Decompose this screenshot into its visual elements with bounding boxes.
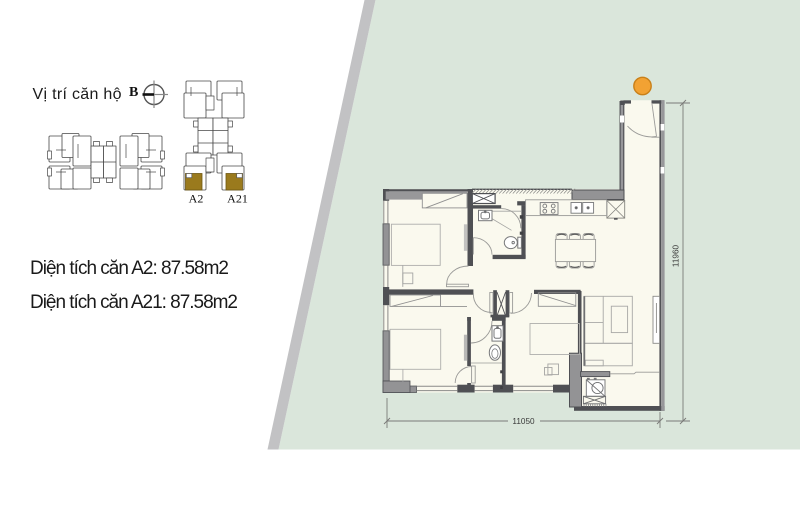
svg-text:A21: A21 bbox=[227, 192, 248, 206]
svg-text:11050: 11050 bbox=[512, 417, 535, 426]
svg-text:Diện tích căn A21: 87.58m2: Diện tích căn A21: 87.58m2 bbox=[30, 292, 238, 313]
svg-text:B: B bbox=[129, 85, 138, 100]
svg-text:Vị trí căn hộ: Vị trí căn hộ bbox=[33, 86, 122, 103]
svg-text:11960: 11960 bbox=[672, 244, 681, 267]
svg-text:A2: A2 bbox=[189, 192, 204, 206]
svg-text:Diện tích căn A2: 87.58m2: Diện tích căn A2: 87.58m2 bbox=[30, 258, 229, 279]
